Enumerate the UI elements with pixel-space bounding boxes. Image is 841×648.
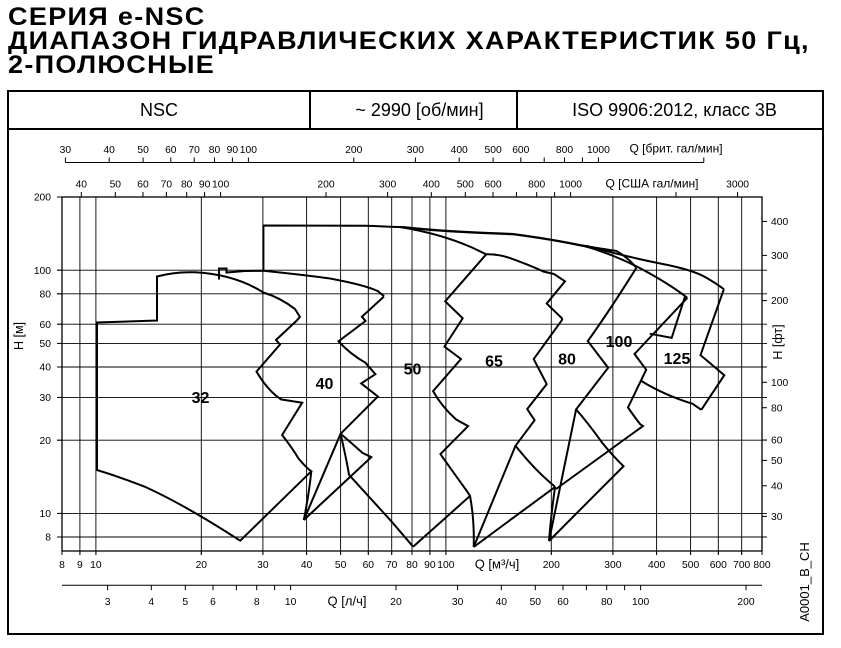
svg-text:10: 10 bbox=[285, 597, 297, 608]
svg-text:20: 20 bbox=[196, 560, 208, 571]
svg-text:50: 50 bbox=[40, 339, 52, 350]
svg-text:90: 90 bbox=[227, 145, 239, 156]
svg-text:300: 300 bbox=[771, 251, 788, 262]
svg-text:200: 200 bbox=[317, 179, 334, 190]
svg-text:A0001_B_CH: A0001_B_CH bbox=[797, 542, 812, 622]
svg-text:100: 100 bbox=[632, 597, 649, 608]
svg-text:60: 60 bbox=[363, 560, 375, 571]
svg-text:40: 40 bbox=[496, 597, 508, 608]
svg-text:20: 20 bbox=[390, 597, 402, 608]
svg-text:60: 60 bbox=[165, 145, 177, 156]
svg-text:30: 30 bbox=[452, 597, 464, 608]
svg-text:100: 100 bbox=[212, 179, 229, 190]
svg-text:800: 800 bbox=[556, 145, 573, 156]
svg-text:200: 200 bbox=[543, 560, 560, 571]
svg-text:300: 300 bbox=[407, 145, 424, 156]
svg-text:80: 80 bbox=[406, 560, 418, 571]
svg-text:1000: 1000 bbox=[587, 145, 610, 156]
svg-text:9: 9 bbox=[77, 560, 83, 571]
svg-text:Q [США гал/мин]: Q [США гал/мин] bbox=[605, 176, 698, 190]
svg-text:6: 6 bbox=[210, 597, 216, 608]
svg-text:125: 125 bbox=[664, 351, 691, 368]
svg-text:80: 80 bbox=[601, 597, 613, 608]
svg-text:500: 500 bbox=[682, 560, 699, 571]
svg-text:100: 100 bbox=[437, 560, 454, 571]
svg-text:32: 32 bbox=[192, 390, 210, 407]
svg-text:200: 200 bbox=[737, 597, 754, 608]
svg-text:Q [брит. гал/мин]: Q [брит. гал/мин] bbox=[629, 142, 722, 156]
svg-text:Q [м³/ч]: Q [м³/ч] bbox=[475, 557, 520, 572]
svg-text:8: 8 bbox=[59, 560, 65, 571]
svg-text:60: 60 bbox=[557, 597, 569, 608]
svg-text:800: 800 bbox=[528, 179, 545, 190]
svg-text:40: 40 bbox=[76, 179, 88, 190]
svg-text:10: 10 bbox=[40, 509, 52, 520]
svg-text:80: 80 bbox=[209, 145, 221, 156]
svg-text:300: 300 bbox=[379, 179, 396, 190]
svg-text:400: 400 bbox=[771, 217, 788, 228]
svg-text:50: 50 bbox=[137, 145, 149, 156]
svg-text:H [м]: H [м] bbox=[12, 322, 26, 350]
svg-text:40: 40 bbox=[40, 363, 52, 374]
svg-text:400: 400 bbox=[423, 179, 440, 190]
svg-text:70: 70 bbox=[161, 179, 173, 190]
svg-text:200: 200 bbox=[345, 145, 362, 156]
svg-text:3000: 3000 bbox=[726, 179, 749, 190]
svg-text:70: 70 bbox=[188, 145, 200, 156]
svg-text:90: 90 bbox=[199, 179, 211, 190]
svg-text:30: 30 bbox=[60, 145, 72, 156]
svg-text:500: 500 bbox=[457, 179, 474, 190]
svg-text:100: 100 bbox=[34, 266, 51, 277]
svg-text:H [фт]: H [фт] bbox=[771, 324, 785, 359]
svg-text:600: 600 bbox=[710, 560, 727, 571]
svg-text:60: 60 bbox=[40, 320, 52, 331]
svg-text:50: 50 bbox=[771, 456, 783, 467]
svg-text:300: 300 bbox=[604, 560, 621, 571]
svg-text:90: 90 bbox=[424, 560, 436, 571]
svg-text:Q [л/ч]: Q [л/ч] bbox=[328, 594, 367, 609]
svg-text:400: 400 bbox=[648, 560, 665, 571]
svg-text:50: 50 bbox=[404, 362, 422, 379]
svg-text:40: 40 bbox=[301, 560, 313, 571]
svg-text:10: 10 bbox=[90, 560, 102, 571]
svg-text:400: 400 bbox=[451, 145, 468, 156]
svg-text:30: 30 bbox=[40, 393, 52, 404]
svg-text:4: 4 bbox=[148, 597, 154, 608]
svg-text:5: 5 bbox=[182, 597, 188, 608]
svg-text:80: 80 bbox=[558, 351, 576, 368]
svg-text:80: 80 bbox=[181, 179, 193, 190]
svg-text:200: 200 bbox=[34, 193, 51, 204]
svg-text:30: 30 bbox=[771, 512, 783, 523]
svg-text:50: 50 bbox=[530, 597, 542, 608]
svg-text:70: 70 bbox=[386, 560, 398, 571]
svg-text:20: 20 bbox=[40, 436, 52, 447]
svg-text:80: 80 bbox=[771, 403, 783, 414]
svg-text:1000: 1000 bbox=[559, 179, 582, 190]
svg-text:50: 50 bbox=[335, 560, 347, 571]
svg-text:40: 40 bbox=[771, 481, 783, 492]
svg-text:30: 30 bbox=[257, 560, 269, 571]
svg-text:40: 40 bbox=[103, 145, 115, 156]
svg-text:50: 50 bbox=[110, 179, 122, 190]
svg-text:60: 60 bbox=[771, 436, 783, 447]
svg-text:8: 8 bbox=[254, 597, 260, 608]
svg-text:700: 700 bbox=[733, 560, 750, 571]
svg-text:800: 800 bbox=[753, 560, 770, 571]
svg-text:100: 100 bbox=[771, 378, 788, 389]
svg-text:600: 600 bbox=[512, 145, 529, 156]
svg-text:40: 40 bbox=[316, 376, 334, 393]
svg-text:65: 65 bbox=[485, 353, 503, 370]
svg-text:80: 80 bbox=[40, 289, 52, 300]
svg-text:3: 3 bbox=[105, 597, 111, 608]
svg-text:500: 500 bbox=[485, 145, 502, 156]
svg-text:8: 8 bbox=[45, 533, 51, 544]
svg-text:60: 60 bbox=[137, 179, 149, 190]
svg-text:100: 100 bbox=[240, 145, 257, 156]
svg-text:100: 100 bbox=[606, 334, 633, 351]
svg-text:200: 200 bbox=[771, 296, 788, 307]
svg-text:600: 600 bbox=[484, 179, 501, 190]
